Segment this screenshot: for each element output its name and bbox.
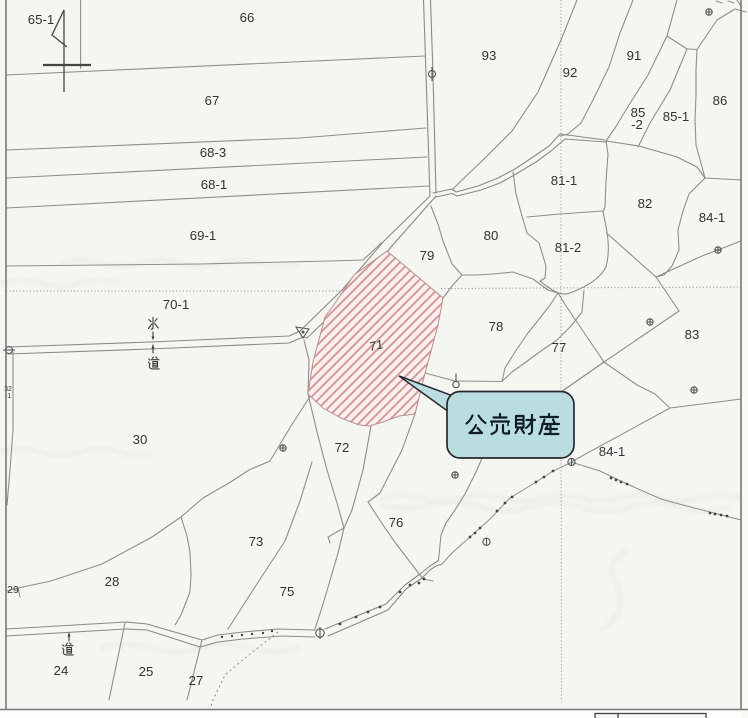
svg-text:81-1: 81-1 (551, 173, 577, 188)
svg-text:79: 79 (420, 248, 435, 263)
svg-text:76: 76 (389, 515, 404, 530)
svg-text:-2: -2 (631, 117, 643, 132)
svg-text:72: 72 (335, 440, 350, 455)
svg-text:66: 66 (240, 10, 255, 25)
svg-text:75: 75 (280, 584, 295, 599)
svg-text:84-1: 84-1 (699, 210, 725, 225)
svg-text:32: 32 (4, 386, 12, 393)
svg-text:70-1: 70-1 (163, 297, 189, 312)
svg-text:67: 67 (205, 93, 220, 108)
svg-text:81-2: 81-2 (555, 240, 581, 255)
svg-text:84-1: 84-1 (599, 444, 625, 459)
svg-text:68-1: 68-1 (201, 177, 227, 192)
svg-text:28: 28 (105, 574, 120, 589)
svg-text:29: 29 (7, 584, 19, 596)
svg-text:78: 78 (489, 319, 504, 334)
svg-text:77: 77 (552, 340, 567, 355)
svg-text:91: 91 (627, 48, 642, 63)
svg-text:65-1: 65-1 (28, 12, 54, 27)
svg-text:68-3: 68-3 (200, 145, 226, 160)
svg-text:80: 80 (484, 228, 499, 243)
svg-text:86: 86 (713, 93, 728, 108)
svg-text:92: 92 (563, 65, 578, 80)
svg-text:69-1: 69-1 (190, 228, 216, 243)
svg-text:24: 24 (54, 663, 69, 678)
svg-text:27: 27 (189, 673, 204, 688)
svg-text:93: 93 (482, 48, 497, 63)
svg-text:73: 73 (249, 534, 264, 549)
svg-text:30: 30 (133, 432, 148, 447)
svg-text:82: 82 (638, 196, 653, 211)
svg-text:85-1: 85-1 (663, 109, 689, 124)
svg-text:25: 25 (139, 664, 154, 679)
svg-text:83: 83 (685, 327, 700, 342)
